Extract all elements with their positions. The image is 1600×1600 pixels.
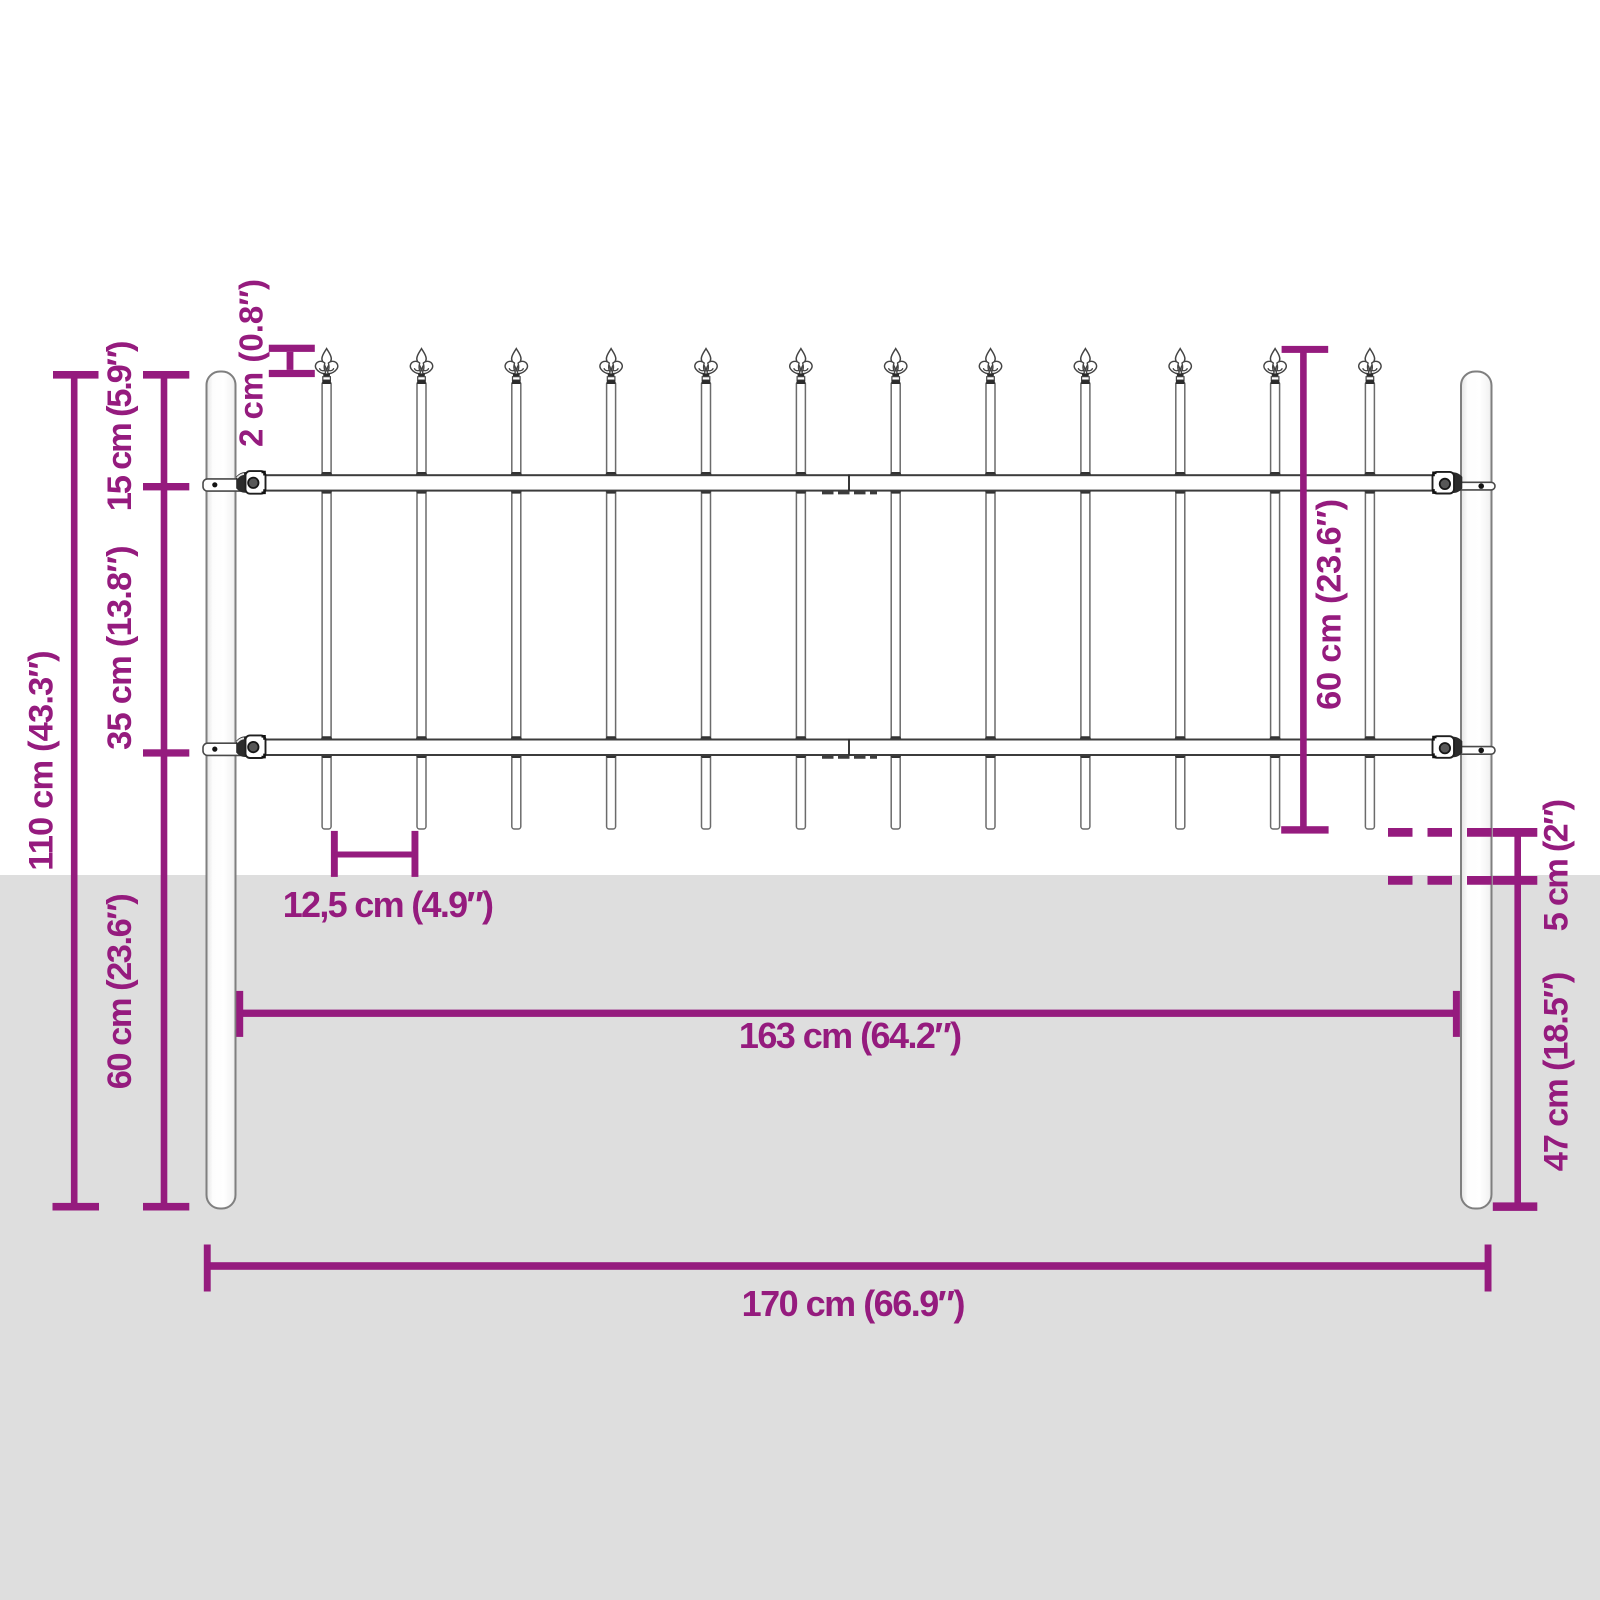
svg-text:60 cm (23.6″): 60 cm (23.6″) <box>1311 499 1349 710</box>
svg-text:163 cm (64.2″): 163 cm (64.2″) <box>739 1015 961 1056</box>
svg-text:12,5 cm (4.9″): 12,5 cm (4.9″) <box>283 884 493 925</box>
svg-text:47 cm (18.5″): 47 cm (18.5″) <box>1538 973 1576 1171</box>
svg-text:2 cm (0.8″): 2 cm (0.8″) <box>233 279 270 447</box>
svg-text:60 cm (23.6″): 60 cm (23.6″) <box>101 895 139 1090</box>
svg-text:5 cm (2″): 5 cm (2″) <box>1538 800 1576 931</box>
svg-text:35 cm (13.8″): 35 cm (13.8″) <box>101 546 139 750</box>
svg-text:110 cm (43.3″): 110 cm (43.3″) <box>23 651 61 870</box>
svg-text:170 cm (66.9″): 170 cm (66.9″) <box>742 1283 965 1324</box>
svg-text:15 cm (5.9″): 15 cm (5.9″) <box>101 342 139 511</box>
